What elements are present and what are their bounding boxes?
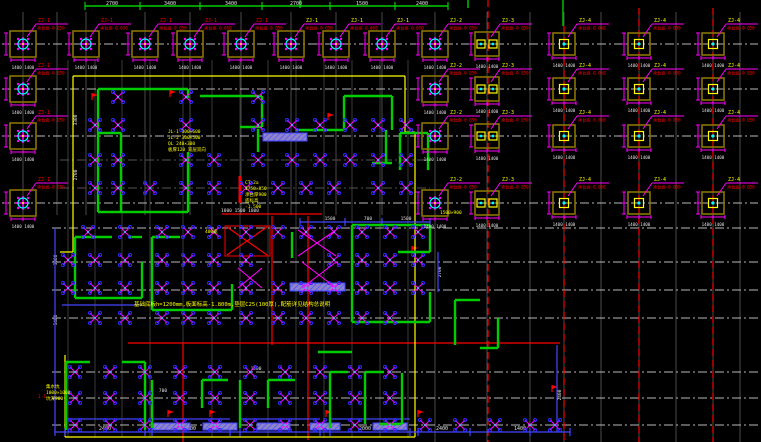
pile-cap[interactable]: 1400 1400ZJ-4承台面-0.050 [547,18,609,68]
cap-dim-text: 1400 1400 [628,155,651,160]
cap-elevation-label: 承台面-0.050 [449,184,477,191]
cap-dim-text: 1400 1400 [628,63,651,68]
pile-cap[interactable]: 1400 1400ZJ-4承台面-0.050 [547,63,609,113]
pile-marker[interactable] [412,282,425,295]
note-line: 承台厚900 [245,191,267,198]
cap-dim-text: 1400 1400 [476,223,499,228]
cap-label: ZJ-3 [502,63,514,69]
cap-label: ZJ-4 [728,63,740,69]
cap-label: ZJ-4 [728,18,740,24]
pile-marker[interactable] [240,254,253,267]
cap-elevation-label: 承台面-0.050 [501,25,529,32]
foundation-plan-drawing[interactable]: 2700340034002700150024002400200024002000… [0,0,761,442]
cap-label: ZJ-1 [38,177,50,183]
cap-label: ZJ-1 [256,18,268,24]
cap-dim-text: 1400 1400 [75,65,98,70]
stair-shaft-brace[interactable] [298,230,336,256]
cap-label: ZJ-4 [728,177,740,183]
ground-beam-hatch[interactable] [257,423,290,430]
cap-dim-text: 1400 1400 [179,65,202,70]
note-line: 底标高 [245,197,259,204]
cap-elevation-label: 承台面-0.050 [501,70,529,77]
dim-text-rotated: 2700 [73,169,79,180]
revision-flag-marker[interactable] [170,90,176,97]
cap-elevation-label: 承台面-0.050 [653,70,681,77]
pile-cap[interactable]: 1400 1400ZJ-4承台面-0.050 [696,177,758,227]
dim-text-rotated: 5400 [53,314,59,325]
dim-text: 700 [159,388,167,394]
pile-marker[interactable] [208,282,221,295]
cap-elevation-label: 承台面-0.050 [449,117,477,124]
note-line: 1750×850 [245,186,267,192]
pile-cap[interactable]: 1400 1400ZJ-4承台面-0.050 [696,110,758,160]
pile-marker[interactable] [356,226,369,239]
cap-dim-text: 1400 1400 [134,65,157,70]
revision-flag-marker[interactable] [210,410,216,417]
cap-elevation-label: 承台面-0.050 [727,117,755,124]
note-block[interactable]: JL-1 300×600JL-2 300×500QL 240×300板厚120 … [168,129,206,153]
pile-marker[interactable] [328,254,341,267]
pile-cap[interactable]: 1400 1400ZJ-4承台面-0.050 [622,63,684,113]
top-dim-text: 1500 [356,1,368,7]
pile-marker[interactable] [156,254,169,267]
cap-dim-text: 1400 1400 [628,222,651,227]
cap-elevation-label: 承台面-0.050 [37,117,65,124]
cap-label: ZJ-1 [38,18,50,24]
pile-cap[interactable]: 1400 1400ZJ-4承台面-0.050 [622,18,684,68]
cap-dim-text: 1400 1400 [424,224,447,229]
note-line: JL-1 300×600 [168,129,201,135]
cap-elevation-label: 承台面-0.050 [501,184,529,191]
pile-marker[interactable] [119,254,132,267]
note-line: -1.500 [245,204,262,210]
cap-dim-text: 1400 1400 [12,157,35,162]
cap-dim-text: 1400 1400 [628,108,651,113]
ground-beam-hatch-layer[interactable] [153,133,407,430]
cap-dim-text: 1400 1400 [702,108,725,113]
cap-dim-text: 1400 1400 [702,63,725,68]
top-dim-text: 2400 [416,1,428,7]
cap-elevation-label: 承台面-0.050 [37,70,65,77]
pile-marker[interactable] [119,282,132,295]
pile-marker[interactable] [208,254,221,267]
cap-label: ZJ-1 [38,63,50,69]
cap-dim-text: 1400 1400 [476,109,499,114]
cap-elevation-label: 承台面-0.050 [653,184,681,191]
cap-label: ZJ-1 [101,18,113,24]
cap-dim-text: 1400 1400 [280,65,303,70]
pile-cap[interactable]: 1400 1400ZJ-4承台面-0.050 [547,110,609,160]
revision-flag-marker[interactable] [328,113,334,120]
cap-label: ZJ-2 [450,18,462,24]
cap-label: ZJ-1 [306,18,318,24]
pile-marker[interactable] [384,254,397,267]
cap-elevation-label: 承台面-0.050 [578,184,606,191]
cap-dim-text: 1400 1400 [12,110,35,115]
cap-elevation-label: 承台面-0.050 [37,184,65,191]
pile-marker[interactable] [272,226,285,239]
cap-label: ZJ-4 [579,63,591,69]
pile-marker[interactable] [344,119,357,132]
dim-text: 1500 [401,216,412,222]
cap-elevation-label: 承台面-0.050 [578,25,606,32]
pile-marker[interactable] [272,282,285,295]
note-tag: 1500×900 [440,210,462,216]
cap-dim-text: 1400 1400 [230,65,253,70]
pile-marker[interactable] [384,226,397,239]
cap-elevation-label: 承台面-0.050 [653,117,681,124]
cap-label: ZJ-2 [450,177,462,183]
pile-marker[interactable] [112,91,125,104]
cap-label: ZJ-4 [579,110,591,116]
ground-beam-hatch[interactable] [290,283,345,291]
pile-marker[interactable] [372,119,385,132]
pile-marker[interactable] [180,91,193,104]
cap-label: ZJ-1 [397,18,409,24]
dim-text: 700 [364,216,372,222]
note-line: 1000×1000 [46,390,71,396]
cap-dim-text: 1400 1400 [553,155,576,160]
cap-dim-text: 1400 1400 [476,64,499,69]
cap-label: ZJ-4 [579,177,591,183]
dim-text: 1500 [325,216,336,222]
pile-marker[interactable] [119,226,132,239]
dim-text-rotated: 2400 [557,389,563,400]
pile-marker[interactable] [240,282,253,295]
cap-label: ZJ-4 [654,18,666,24]
pile-marker[interactable] [412,226,425,239]
cap-dim-text: 1400 1400 [702,155,725,160]
cap-dim-text: 1400 1400 [424,110,447,115]
cap-elevation-label: 承台面-0.050 [727,184,755,191]
note-line: JL-2 300×500 [168,135,201,141]
cad-drawing-canvas[interactable]: 2700340034002700150024002400200024002000… [0,0,761,442]
pile-cap[interactable]: 1400 1400ZJ-4承台面-0.050 [622,110,684,160]
cap-elevation-label: 承台面-0.050 [449,25,477,32]
pile-marker[interactable] [400,119,413,132]
top-dim-text: 3400 [164,1,176,7]
pile-marker[interactable] [356,254,369,267]
note-line: 集水坑 [46,383,60,390]
note-block[interactable]: CT-2a1750×850承台厚900底标高-1.500 [245,180,267,210]
cap-label: ZJ-4 [654,177,666,183]
cap-elevation-label: 承台面-0.050 [100,25,128,32]
cap-label: ZJ-4 [728,110,740,116]
cap-dim-text: 1400 1400 [424,157,447,162]
pile-cap[interactable]: 1400 1400ZJ-4承台面-0.050 [696,18,758,68]
cap-elevation-label: 承台面-0.050 [37,25,65,32]
top-dim-text: 3400 [225,1,237,7]
revision-flag-marker[interactable] [168,410,174,417]
cap-label: ZJ-4 [654,110,666,116]
note-line: CT-2a [245,180,259,186]
cap-dim-text: 1400 1400 [476,156,499,161]
cap-dim-text: 1400 1400 [371,65,394,70]
cap-elevation-label: 承台面-0.050 [727,25,755,32]
cap-label: ZJ-3 [502,177,514,183]
cap-dim-text: 1400 1400 [553,108,576,113]
cap-dim-text: 1400 1400 [553,222,576,227]
ground-beam-hatch[interactable] [263,133,307,141]
section-mark-text: 1-1 [38,394,46,400]
beam-dimension-layer[interactable] [55,218,570,436]
cap-elevation-label: 承台面-0.050 [653,25,681,32]
pile-marker[interactable] [156,282,169,295]
cap-label: ZJ-1 [351,18,363,24]
cap-label: ZJ-2 [450,110,462,116]
note-tag: 400宽 [205,228,218,235]
cap-elevation-label: 承台面-0.050 [449,70,477,77]
top-dim-text: 2700 [290,1,302,7]
pile-marker[interactable] [112,119,125,132]
cap-elevation-label: 承台面-0.050 [578,117,606,124]
pile-marker[interactable] [240,226,253,239]
cap-dim-text: 1400 1400 [553,63,576,68]
cap-dim-text: 1400 1400 [12,224,35,229]
cap-label: ZJ-1 [38,110,50,116]
cap-label: ZJ-4 [654,63,666,69]
cap-label: ZJ-4 [579,18,591,24]
pile-cap[interactable]: 1400 1400ZJ-4承台面-0.050 [622,177,684,227]
cap-label: ZJ-3 [502,18,514,24]
cap-elevation-label: 承台面-0.050 [727,70,755,77]
stair-shaft-brace[interactable] [238,268,262,288]
cap-dim-text: 1400 1400 [702,222,725,227]
bottom-dim-text: 2400 [436,426,448,432]
cap-label: ZJ-1 [205,18,217,24]
top-dim-text: 2700 [106,1,118,7]
note-line: QL 240×300 [168,141,195,147]
cap-dim-text: 1400 1400 [325,65,348,70]
pile-marker[interactable] [384,282,397,295]
cap-label: ZJ-2 [450,63,462,69]
note-line: 板厚120 双层双向 [168,146,206,153]
pile-cap[interactable]: 1400 1400ZJ-4承台面-0.050 [696,63,758,113]
dim-text-rotated: 3300 [53,254,59,265]
pile-marker[interactable] [356,282,369,295]
revision-flag-marker[interactable] [418,410,424,417]
cap-elevation-label: 承台面-0.050 [396,25,424,32]
pile-cap[interactable]: 1400 1400ZJ-4承台面-0.050 [547,177,609,227]
pile-marker[interactable] [286,119,299,132]
cap-elevation-label: 承台面-0.050 [578,70,606,77]
cap-dim-text: 1400 1400 [12,65,35,70]
cap-dim-text: 1400 1400 [424,65,447,70]
pile-marker[interactable] [412,254,425,267]
cap-label: ZJ-3 [502,110,514,116]
slab-note-text: 基础底板h=1200mm,板面标高-1.800m,垫层C25(100厚),配筋详… [134,300,331,308]
note-line: 坑深900 [46,395,63,402]
cap-label: ZJ-1 [160,18,172,24]
cap-elevation-label: 承台面-0.050 [501,117,529,124]
dim-text-rotated: 3300 [73,114,79,125]
